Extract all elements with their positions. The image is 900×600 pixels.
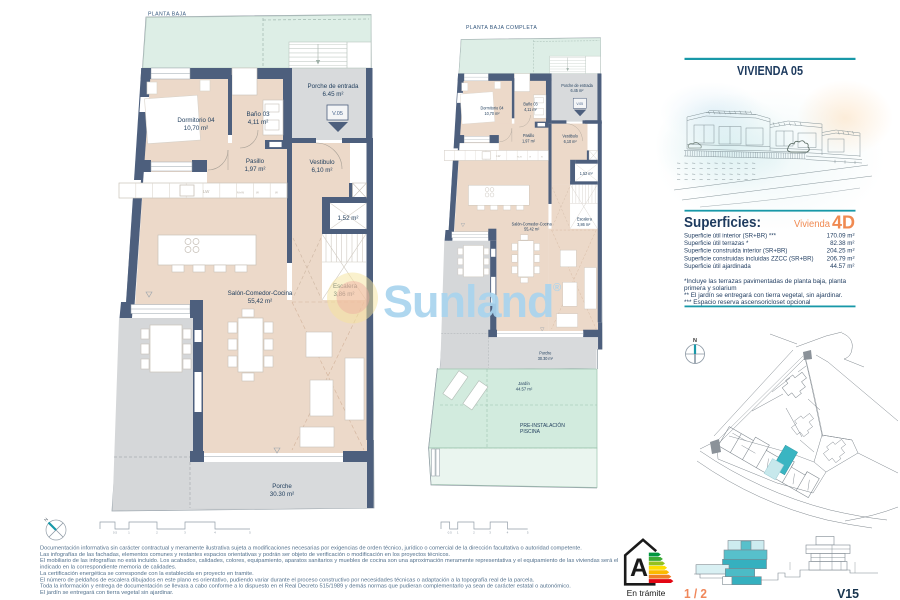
svg-text:N: N [693, 338, 697, 344]
svg-text:El mobiliario de las infografí: El mobiliario de las infografías no está… [40, 558, 618, 564]
svg-text:PLANTA BAJA COMPLETA: PLANTA BAJA COMPLETA [466, 25, 537, 31]
svg-text:Jardín: Jardín [518, 381, 530, 386]
svg-text:*** Espacio reserva ascensoric: *** Espacio reserva ascensoricloset opci… [684, 299, 810, 306]
svg-text:Documentación informativa sin: Documentación informativa sin carácter c… [40, 546, 582, 552]
svg-text:primera y solarium: primera y solarium [684, 285, 737, 292]
svg-text:La certificación energética se: La certificación energética se correspon… [40, 571, 254, 577]
svg-text:El jardín se entregará con tie: El jardín se entregará con tierra vegeta… [40, 590, 174, 596]
svg-text:Superficies:: Superficies: [684, 215, 761, 231]
svg-text:Superficie útil interior (SR+B: Superficie útil interior (SR+BR) *** [684, 233, 777, 240]
svg-text:0.5: 0.5 [113, 531, 118, 535]
svg-text:Las infografías de las fachada: Las infografías de las fachadas, element… [40, 552, 450, 558]
svg-text:PRE-INSTALACIÓN: PRE-INSTALACIÓN [520, 422, 565, 429]
svg-text:Superficie construida interior: Superficie construida interior (SR+BR) [684, 248, 787, 255]
svg-text:V15: V15 [837, 587, 859, 600]
svg-text:El número de peldaños de escal: El número de peldaños de escalera dibuja… [40, 577, 535, 583]
svg-text:82.38 m²: 82.38 m² [830, 240, 854, 247]
svg-text:0.5: 0.5 [448, 531, 453, 535]
svg-text:170.09 m²: 170.09 m² [827, 233, 855, 240]
svg-text:44.57 m²: 44.57 m² [830, 263, 854, 270]
svg-text:PISCINA: PISCINA [520, 429, 541, 435]
svg-text:Toda la información y entrega: Toda la información y entrega de documen… [40, 584, 571, 590]
svg-text:1 / 2: 1 / 2 [684, 587, 707, 600]
svg-text:®: ® [553, 282, 561, 294]
svg-text:PLANTA BAJA: PLANTA BAJA [148, 12, 186, 18]
svg-text:Superficie útil ajardinada: Superficie útil ajardinada [684, 263, 751, 270]
svg-text:*Incluye las terrazas paviment: *Incluye las terrazas pavimentadas de pl… [684, 278, 846, 285]
svg-text:A: A [630, 554, 648, 582]
svg-text:Superficie útil terrazas *: Superficie útil terrazas * [684, 240, 749, 247]
svg-text:VIVIENDA 05: VIVIENDA 05 [737, 64, 803, 78]
svg-text:4D: 4D [832, 212, 855, 233]
svg-text:206.79 m²: 206.79 m² [827, 255, 855, 262]
svg-text:En trámite: En trámite [627, 588, 666, 598]
svg-text:Sunland: Sunland [383, 276, 554, 327]
svg-text:indicado en la correspondiente: indicado en la correspondiente memoria d… [40, 565, 177, 571]
svg-text:44.57 m²: 44.57 m² [516, 387, 533, 392]
svg-text:204.25 m²: 204.25 m² [827, 248, 855, 255]
svg-text:Vivienda: Vivienda [794, 219, 830, 230]
svg-text:Superficie construidas incluid: Superficie construidas incluidas ZZCC (S… [684, 255, 814, 262]
svg-text:** El jardín se entregará con: ** El jardín se entregará con tierra veg… [684, 292, 843, 299]
